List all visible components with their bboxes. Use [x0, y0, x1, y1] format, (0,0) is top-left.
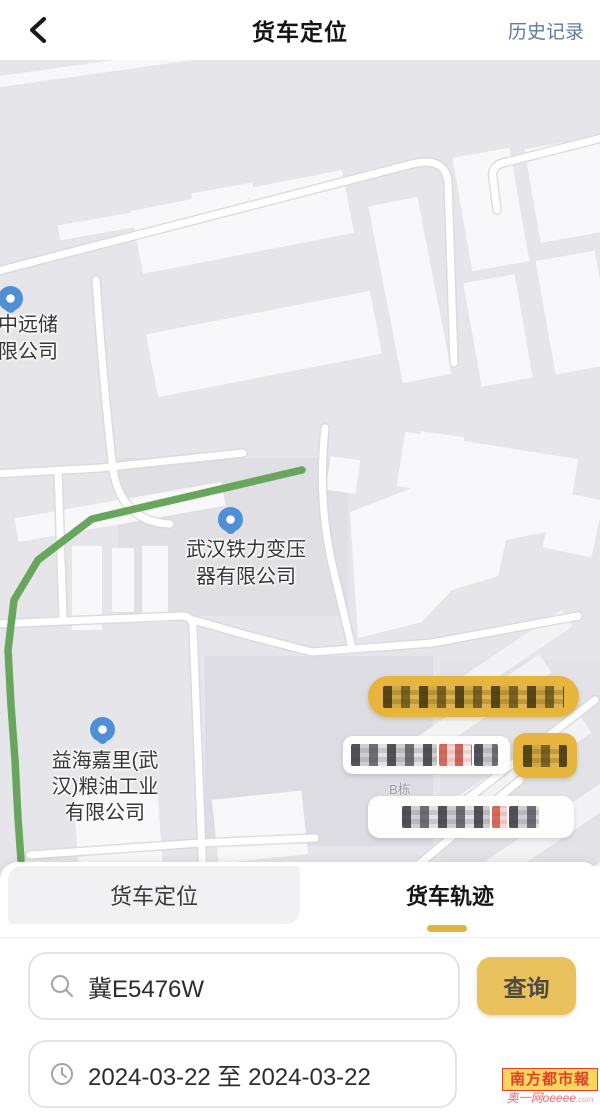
date-range-field[interactable]	[28, 1040, 457, 1108]
map-canvas[interactable]: 中远储 限公司 武汉铁力变压 器有限公司 益海嘉里(武 汉)粮油工业 有限公司	[0, 60, 600, 935]
map-pin-icon	[89, 716, 116, 752]
history-link[interactable]: 历史记录	[508, 0, 584, 60]
query-button[interactable]: 查询	[477, 957, 576, 1015]
bottom-sheet: 货车定位 货车轨迹 查询	[0, 862, 600, 1116]
map-label-wuhan-tieli: 武汉铁力变压 器有限公司	[150, 537, 342, 591]
redacted-gold-banner[interactable]	[368, 676, 579, 717]
tab-truck-positioning[interactable]: 货车定位	[8, 866, 300, 924]
plate-search-field[interactable]	[28, 952, 460, 1020]
redacted-text-mosaic	[383, 686, 564, 708]
tab-bar: 货车定位 货车轨迹	[0, 862, 600, 938]
redacted-white-banner-2[interactable]	[368, 796, 574, 838]
truck-tracking-screen: 货车定位 历史记录	[0, 0, 600, 1116]
tab-truck-trajectory[interactable]: 货车轨迹	[300, 866, 600, 924]
redacted-text-mosaic	[523, 745, 567, 767]
clock-icon	[50, 1062, 74, 1086]
redacted-gold-tag[interactable]	[513, 733, 577, 778]
redacted-text-mosaic	[474, 744, 498, 766]
redacted-text-mosaic	[351, 744, 437, 766]
active-tab-indicator	[427, 925, 467, 932]
map-label-cosco-storage: 中远储 限公司	[0, 312, 90, 366]
watermark-site: 奥一网oeeee.com	[502, 1092, 598, 1106]
watermark: 南方都市報 奥一网oeeee.com	[502, 1068, 598, 1106]
map-label-yihai-kerry: 益海嘉里(武 汉)粮油工业 有限公司	[35, 748, 175, 826]
redacted-white-banner[interactable]	[343, 736, 510, 774]
redacted-red-text-mosaic	[439, 744, 472, 766]
tab-truck-positioning-label: 货车定位	[110, 879, 198, 911]
watermark-brand: 南方都市報	[502, 1068, 598, 1091]
redacted-text-mosaic	[509, 806, 539, 828]
plate-search-input[interactable]	[88, 972, 458, 1000]
header: 货车定位 历史记录	[0, 0, 600, 60]
search-icon	[50, 974, 74, 998]
date-range-input[interactable]	[88, 1060, 455, 1088]
redacted-text-mosaic	[402, 806, 490, 828]
redacted-red-text-mosaic	[492, 806, 507, 828]
tab-truck-trajectory-label: 货车轨迹	[406, 879, 494, 911]
